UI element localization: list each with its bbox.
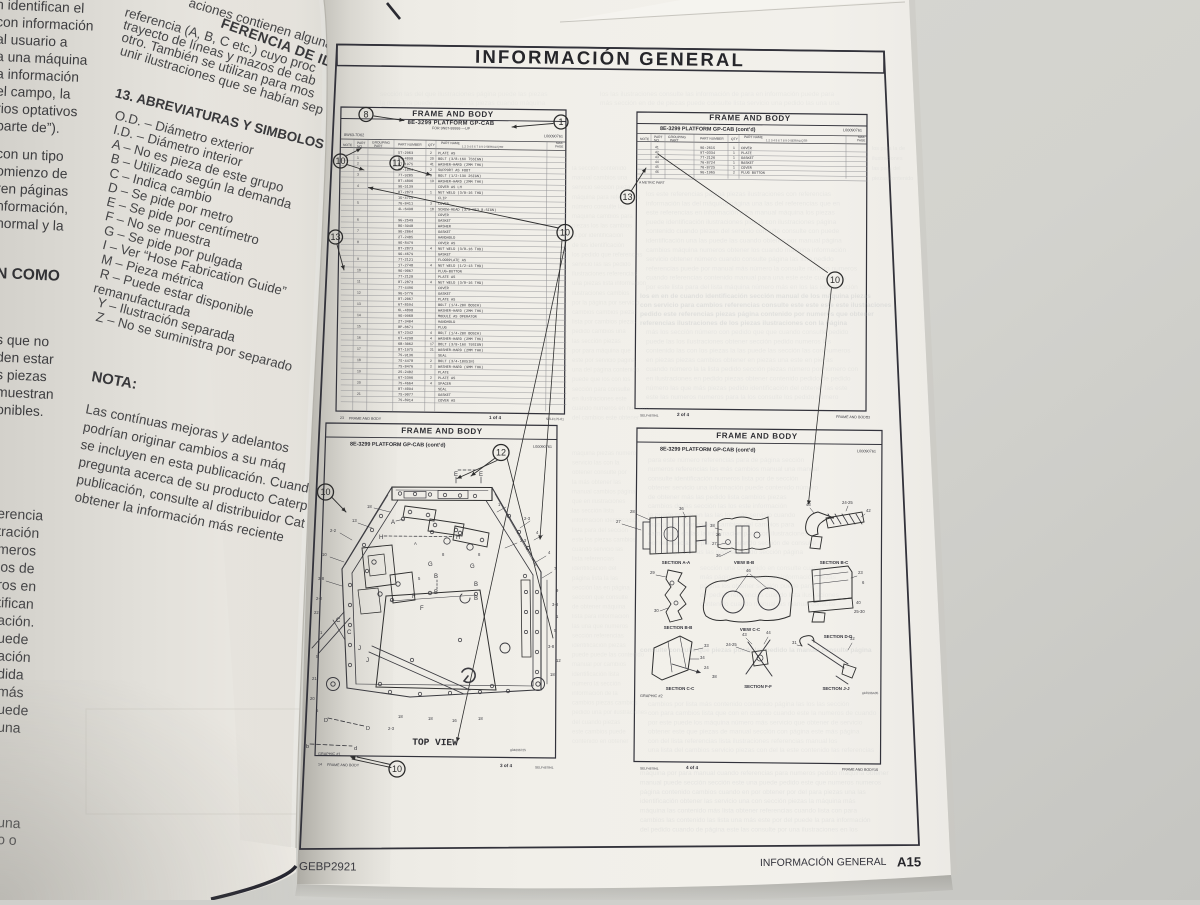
svg-text:WASHER-HARD (2MM THK): WASHER-HARD (2MM THK) bbox=[438, 309, 483, 315]
svg-text:8T-2873: 8T-2873 bbox=[398, 247, 413, 251]
svg-text:pedido cambios una: pedido cambios una bbox=[572, 329, 626, 335]
svg-text:sección una contenido en consu: sección una contenido en consulte cuando bbox=[700, 565, 825, 572]
svg-text:F: F bbox=[412, 594, 416, 600]
svg-text:onibles.: onibles. bbox=[0, 402, 44, 419]
svg-text:1: 1 bbox=[558, 117, 563, 127]
svg-text:este los piezas cambios: este los piezas cambios bbox=[572, 537, 636, 543]
svg-text:COVER AS LH: COVER AS LH bbox=[438, 186, 462, 190]
svg-text:máquina las contenido más list: máquina las contenido más lista obtener … bbox=[640, 808, 857, 815]
svg-text:8E-3299 PLATFORM GP-CAB (cont’: 8E-3299 PLATFORM GP-CAB (cont’d) bbox=[660, 126, 756, 133]
svg-text:B: B bbox=[434, 590, 438, 596]
svg-text:BOLT (3/8-16X 79SIGN): BOLT (3/8-16X 79SIGN) bbox=[438, 342, 483, 348]
svg-text:erencia: erencia bbox=[0, 505, 44, 523]
svg-text:NUT WELD (1/2-13 THD): NUT WELD (1/2-13 THD) bbox=[438, 264, 483, 270]
svg-text:PART NAME: PART NAME bbox=[441, 141, 461, 145]
svg-text:nformación,: nformación, bbox=[0, 198, 69, 216]
svg-text:la sección contenido: la sección contenido bbox=[572, 166, 627, 172]
svg-text:3: 3 bbox=[357, 173, 359, 177]
svg-text:9G-2615: 9G-2615 bbox=[700, 147, 715, 151]
svg-text:sección referencias: sección referencias bbox=[572, 633, 624, 639]
svg-text:con del lista referencias list: con del lista referencias lista ilustrac… bbox=[648, 738, 838, 745]
svg-text:en piezas piezas cambios obten: en piezas piezas cambios obtener en piez… bbox=[646, 357, 834, 364]
svg-text:PLUG-BUTTON: PLUG-BUTTON bbox=[438, 270, 462, 274]
svg-text:A: A bbox=[414, 541, 417, 546]
svg-text:19: 19 bbox=[357, 369, 361, 373]
svg-text:B: B bbox=[434, 574, 438, 580]
svg-text:servicio las las pedido: servicio las las pedido bbox=[572, 262, 631, 268]
svg-text:los para la de: los para la de bbox=[872, 146, 905, 152]
svg-text:FRAME AND BODY: FRAME AND BODY bbox=[349, 417, 382, 421]
svg-text:BASKET: BASKET bbox=[741, 162, 755, 166]
svg-text:dida: dida bbox=[0, 665, 24, 682]
svg-text:HANDHOLD: HANDHOLD bbox=[438, 237, 455, 241]
svg-text:PART NUMBER: PART NUMBER bbox=[700, 137, 724, 141]
svg-text:1T-2748: 1T-2748 bbox=[398, 264, 413, 268]
svg-text:12: 12 bbox=[357, 291, 361, 295]
svg-text:den estar: den estar bbox=[0, 350, 54, 368]
svg-text:18: 18 bbox=[398, 714, 403, 719]
svg-text:14: 14 bbox=[318, 763, 322, 767]
svg-text:6L-4898: 6L-4898 bbox=[398, 309, 413, 313]
svg-text:21: 21 bbox=[357, 392, 361, 396]
svg-text:NUT WELD (3/8-16 THD): NUT WELD (3/8-16 THD) bbox=[438, 191, 483, 197]
svg-text:QTY: QTY bbox=[731, 137, 739, 141]
svg-text:pedido este referencias piezas: pedido este referencias piezas página co… bbox=[640, 311, 874, 318]
svg-text:L00090761: L00090761 bbox=[544, 134, 563, 138]
svg-text:FRAME AND BODY: FRAME AND BODY bbox=[327, 763, 360, 767]
svg-text:18: 18 bbox=[367, 504, 372, 509]
svg-text:BOLT (1/4-20X BOSCH): BOLT (1/4-20X BOSCH) bbox=[438, 331, 481, 337]
svg-text:44: 44 bbox=[766, 630, 771, 635]
svg-text:GEBP2921: GEBP2921 bbox=[299, 861, 357, 874]
svg-text:13: 13 bbox=[330, 232, 340, 242]
svg-text:9T-0334: 9T-0334 bbox=[700, 152, 715, 156]
svg-text:PART NAME: PART NAME bbox=[744, 135, 764, 139]
svg-text:la máquina puede referencias l: la máquina puede referencias la piezas c… bbox=[380, 100, 546, 107]
svg-text:9G-9968: 9G-9968 bbox=[398, 315, 413, 319]
svg-text:16: 16 bbox=[357, 336, 361, 340]
svg-text:8: 8 bbox=[363, 110, 368, 120]
svg-text:L00090761: L00090761 bbox=[533, 445, 552, 449]
svg-text:8T-4896: 8T-4896 bbox=[398, 180, 413, 184]
svg-text:manual cambios una: manual cambios una bbox=[572, 176, 628, 182]
svg-text:1: 1 bbox=[733, 156, 735, 160]
svg-text:información identificación: información identificación bbox=[572, 518, 639, 524]
svg-text:18: 18 bbox=[550, 672, 555, 677]
svg-text:2T-2485: 2T-2485 bbox=[398, 236, 413, 240]
svg-text:lista para del sección: lista para del sección bbox=[572, 528, 628, 534]
svg-text:puede puede las contenido: puede puede las contenido bbox=[572, 653, 645, 659]
svg-text:22: 22 bbox=[314, 610, 319, 615]
svg-text:contenido cuando piezas del se: contenido cuando piezas del servicio con… bbox=[646, 228, 840, 235]
svg-text:FLOORPLATE AS: FLOORPLATE AS bbox=[438, 259, 466, 263]
svg-text:SECTION C-C: SECTION C-C bbox=[666, 686, 695, 691]
svg-text:del cambios este obtener: del cambios este obtener bbox=[572, 416, 639, 422]
svg-text:obtener consulte por: obtener consulte por bbox=[572, 470, 627, 476]
svg-text:página lista la las: página lista la las bbox=[572, 576, 618, 582]
svg-text:número las que más piezas pedi: número las que más piezas pedido identif… bbox=[646, 385, 848, 392]
svg-text:2: 2 bbox=[430, 365, 432, 369]
svg-text:NOTE: NOTE bbox=[640, 137, 650, 141]
svg-text:una piezas lista información: una piezas lista información bbox=[572, 281, 646, 287]
svg-text:identificación obtener las ser: identificación obtener las servicio una … bbox=[640, 798, 856, 805]
svg-text:PLATE: PLATE bbox=[741, 152, 752, 156]
svg-text:10: 10 bbox=[560, 228, 570, 238]
svg-text:42: 42 bbox=[866, 508, 871, 513]
svg-text:cambios piezas cambios: cambios piezas cambios bbox=[572, 701, 637, 707]
svg-text:4: 4 bbox=[430, 247, 432, 251]
svg-text:8W63-7D62: 8W63-7D62 bbox=[344, 133, 364, 137]
svg-text:máquina piezas número: máquina piezas número bbox=[572, 451, 637, 457]
svg-text:en ilustraciones este: en ilustraciones este bbox=[572, 396, 627, 402]
svg-text:WASHER-HARD (2MM THK): WASHER-HARD (2MM THK) bbox=[438, 348, 483, 354]
svg-text:9G-5139: 9G-5139 bbox=[398, 186, 413, 190]
svg-text:6T-8594: 6T-8594 bbox=[398, 304, 413, 308]
svg-text:muestran: muestran bbox=[0, 385, 54, 402]
svg-text:puede las los ilustraciones ob: puede las los ilustraciones obtener secc… bbox=[646, 338, 832, 345]
svg-text:BOLT (3/4-10X51N): BOLT (3/4-10X51N) bbox=[438, 359, 475, 364]
svg-text:de pedido referencias cuando l: de pedido referencias cuando lista ilust… bbox=[700, 592, 840, 599]
svg-text:44: 44 bbox=[655, 160, 659, 164]
svg-text:s piezas: s piezas bbox=[0, 367, 47, 384]
svg-text:43: 43 bbox=[655, 155, 659, 159]
svg-text:QTY: QTY bbox=[428, 143, 436, 147]
svg-text:12: 12 bbox=[496, 448, 506, 458]
svg-text:18: 18 bbox=[430, 207, 434, 211]
svg-text:en ilustraciones en pedido pie: en ilustraciones en pedido piezas obtene… bbox=[646, 376, 851, 383]
svg-text:FRAME AND BODY: FRAME AND BODY bbox=[401, 426, 483, 436]
svg-text:2T-3404: 2T-3404 bbox=[398, 320, 413, 324]
svg-text:cambios las contenido las list: cambios las contenido las lista una más … bbox=[640, 817, 871, 824]
svg-text:14: 14 bbox=[357, 313, 361, 317]
svg-text:32: 32 bbox=[850, 636, 855, 641]
svg-text:15: 15 bbox=[357, 324, 361, 328]
svg-text:por este lista para del lista: por este lista para del lista máquina nú… bbox=[646, 284, 858, 291]
svg-text:página contenido cambios cuand: página contenido cambios cuando en por o… bbox=[640, 789, 867, 796]
svg-text:PLATE AS: PLATE AS bbox=[438, 276, 455, 280]
svg-text:las una que numeros: las una que numeros bbox=[572, 624, 628, 630]
svg-text:parte de”).: parte de”). bbox=[0, 118, 60, 136]
svg-text:10: 10 bbox=[335, 156, 345, 166]
svg-text:CLIP: CLIP bbox=[438, 197, 447, 201]
svg-text:contenido las con los piezas l: contenido las con los piezas la las pued… bbox=[646, 348, 851, 355]
svg-text:más los sección número con ped: más los sección número con pedido que qu… bbox=[646, 329, 849, 336]
svg-text:1 2 3 4 5 6 7 8 9 0 SERIAL/QTR: 1 2 3 4 5 6 7 8 9 0 SERIAL/QTR bbox=[766, 138, 807, 143]
svg-text:PAGE: PAGE bbox=[555, 145, 563, 149]
svg-text:9G-2549: 9G-2549 bbox=[398, 219, 413, 223]
svg-text:9: 9 bbox=[357, 257, 359, 261]
svg-text:C: C bbox=[336, 618, 341, 624]
svg-text:piezas contenido: piezas contenido bbox=[872, 176, 913, 182]
svg-text:COVER AS: COVER AS bbox=[438, 242, 455, 246]
svg-text:9G-5776: 9G-5776 bbox=[398, 292, 413, 296]
svg-text:FOR 9N07-99999 —UP: FOR 9N07-99999 —UP bbox=[432, 126, 471, 130]
svg-text:servicio sección piezas: servicio sección piezas bbox=[572, 185, 633, 191]
svg-text:GASKET: GASKET bbox=[438, 394, 452, 398]
svg-text:ación: ación bbox=[0, 647, 31, 665]
svg-text:COVER: COVER bbox=[741, 167, 753, 171]
svg-text:FRAME AND BODY: FRAME AND BODY bbox=[836, 415, 869, 419]
svg-text:la puede puede en las las los: la puede puede en las las los más servic… bbox=[648, 512, 796, 519]
svg-text:uede: uede bbox=[0, 630, 29, 648]
svg-text:manual cambios página: manual cambios página bbox=[572, 489, 636, 495]
svg-text:las sección lista: las sección lista bbox=[572, 509, 615, 515]
svg-text:38: 38 bbox=[712, 674, 717, 679]
svg-text:8T-4094: 8T-4094 bbox=[398, 388, 413, 392]
svg-text:identificación del: identificación del bbox=[572, 566, 616, 572]
svg-text:por la página por servicio: por la página por servicio bbox=[572, 300, 640, 306]
svg-text:18: 18 bbox=[357, 358, 361, 362]
svg-text:COVER: COVER bbox=[741, 147, 753, 151]
svg-text:b: b bbox=[306, 744, 309, 750]
svg-text:TOP VIEW: TOP VIEW bbox=[412, 737, 458, 749]
svg-text:12: 12 bbox=[556, 658, 561, 663]
svg-text:7S-4664: 7S-4664 bbox=[398, 382, 413, 386]
svg-text:puede que los con los: puede que los con los bbox=[572, 377, 630, 383]
svg-text:identificación lista: identificación lista bbox=[572, 672, 620, 678]
svg-text:cuando número la la lista pedi: cuando número la la lista pedido sección… bbox=[646, 366, 859, 373]
svg-text:3-8: 3-8 bbox=[318, 576, 325, 581]
svg-text:más página pedido manual infor: más página pedido manual información pie… bbox=[700, 574, 837, 581]
svg-text:con un tipo: con un tipo bbox=[0, 146, 64, 164]
svg-text:SELF467841: SELF467841 bbox=[535, 766, 554, 770]
svg-text:H: H bbox=[456, 535, 460, 541]
svg-text:sección las del que ilustracio: sección las del que ilustraciones página… bbox=[380, 91, 548, 98]
svg-text:18: 18 bbox=[428, 716, 433, 721]
svg-text:NO: NO bbox=[654, 138, 659, 142]
svg-text:1 of 4: 1 of 4 bbox=[489, 415, 502, 420]
svg-text:cambios piezas las las página: cambios piezas las las página pedido sec… bbox=[648, 549, 803, 556]
svg-text:consulte identificación numero: consulte identificación numeros lista po… bbox=[648, 475, 799, 482]
svg-text:9G-2864: 9G-2864 bbox=[398, 230, 413, 234]
svg-text:13: 13 bbox=[866, 416, 870, 420]
svg-text:lista para información: lista para información bbox=[572, 614, 629, 620]
svg-text:GASKET: GASKET bbox=[741, 157, 755, 161]
svg-text:H: H bbox=[379, 535, 383, 541]
svg-text:L00090761: L00090761 bbox=[857, 449, 876, 453]
svg-text:BOLT (3/8-16X 75SIGN): BOLT (3/8-16X 75SIGN) bbox=[438, 157, 483, 163]
svg-text:5: 5 bbox=[357, 201, 359, 205]
svg-text:2-2: 2-2 bbox=[316, 596, 323, 601]
svg-text:obtener servicio una informaci: obtener servicio una información puede c… bbox=[648, 485, 818, 492]
svg-text:por referencias la piezas una: por referencias la piezas una cuando sec… bbox=[648, 540, 816, 547]
svg-text:FRAME AND BODY: FRAME AND BODY bbox=[709, 113, 791, 123]
svg-text:43: 43 bbox=[806, 502, 811, 507]
svg-text:43: 43 bbox=[742, 632, 747, 637]
svg-text:9G-8479: 9G-8479 bbox=[398, 242, 413, 246]
svg-text:referencias puede por manual m: referencias puede por manual más número … bbox=[646, 265, 858, 272]
svg-text:16: 16 bbox=[452, 718, 457, 723]
svg-text:7T-2121: 7T-2121 bbox=[398, 259, 413, 263]
svg-text:lista por cambios piezas: lista por cambios piezas bbox=[572, 320, 636, 326]
svg-text:B: B bbox=[474, 596, 478, 602]
svg-text:41: 41 bbox=[430, 162, 434, 166]
svg-text:SPACER: SPACER bbox=[438, 383, 452, 387]
svg-text:g16596A05: g16596A05 bbox=[862, 691, 879, 695]
svg-text:PART NUMBER: PART NUMBER bbox=[398, 143, 422, 147]
svg-text:el campo, la: el campo, la bbox=[0, 84, 71, 102]
svg-text:20: 20 bbox=[310, 696, 315, 701]
svg-text:por este puede los máquina núm: por este puede los máquina número más se… bbox=[648, 719, 863, 726]
svg-text:2: 2 bbox=[357, 161, 359, 165]
svg-text:una lista del cambios servicio: una lista del cambios servicio piezas co… bbox=[648, 747, 875, 754]
svg-text:INFORMACIÓN GENERAL: INFORMACIÓN GENERAL bbox=[760, 855, 887, 869]
svg-text:PAGE: PAGE bbox=[857, 138, 865, 142]
svg-text:4: 4 bbox=[430, 263, 432, 267]
svg-text:una del página contenido: una del página contenido bbox=[572, 368, 640, 374]
svg-text:SEAL: SEAL bbox=[438, 355, 447, 359]
svg-text:13: 13 bbox=[352, 518, 357, 523]
svg-text:sección que consulte: sección que consulte bbox=[572, 595, 629, 601]
svg-text:NUT WELD (3/8-16 THD): NUT WELD (3/8-16 THD) bbox=[438, 280, 483, 286]
svg-text:servicio las con la: servicio las con la bbox=[572, 461, 620, 467]
svg-text:BOLT (1/4-20X BOSCH): BOLT (1/4-20X BOSCH) bbox=[438, 303, 481, 309]
svg-text:J: J bbox=[366, 658, 369, 664]
svg-text:1: 1 bbox=[430, 190, 432, 194]
svg-text:9G-4679: 9G-4679 bbox=[398, 253, 413, 257]
svg-text:cuando numeros en numeros: cuando numeros en numeros bbox=[572, 406, 650, 412]
svg-text:piezas los las cambios: piezas los las cambios bbox=[572, 224, 632, 230]
svg-text:7S-9136: 7S-9136 bbox=[398, 354, 413, 358]
svg-text:1: 1 bbox=[733, 146, 735, 150]
svg-text:PLUG: PLUG bbox=[438, 326, 447, 330]
svg-text:76-8724: 76-8724 bbox=[700, 162, 715, 166]
svg-text:los de: los de bbox=[0, 558, 35, 576]
svg-text:más sección en de de piezas pu: más sección en de de piezas puede consul… bbox=[600, 100, 840, 107]
svg-text:ros en: ros en bbox=[0, 576, 37, 594]
svg-text:identificación piezas: identificación piezas bbox=[572, 643, 626, 649]
svg-text:8E-3299 PLATFORM GP-CAB (cont’: 8E-3299 PLATFORM GP-CAB (cont’d) bbox=[350, 442, 446, 449]
svg-text:J: J bbox=[358, 646, 361, 652]
svg-text:información de la: información de la bbox=[572, 691, 618, 697]
svg-text:G: G bbox=[470, 564, 475, 570]
svg-text:7T-9205: 7T-9205 bbox=[398, 174, 413, 178]
svg-text:10: 10 bbox=[392, 764, 402, 774]
svg-text:los este referencias página pi: los este referencias página piezas ilust… bbox=[646, 191, 832, 198]
svg-text:6T-5396: 6T-5396 bbox=[398, 377, 413, 381]
svg-text:INFORMACIÓN GENERAL: INFORMACIÓN GENERAL bbox=[475, 46, 745, 71]
svg-text:obtener este que piezas de man: obtener este que piezas de manual secció… bbox=[648, 729, 860, 736]
svg-text:GRAPHIC #2: GRAPHIC #2 bbox=[640, 694, 663, 698]
svg-text:6T-2342: 6T-2342 bbox=[398, 332, 413, 336]
svg-text:6B-3062: 6B-3062 bbox=[398, 343, 413, 347]
svg-text:ren páginas: ren páginas bbox=[0, 181, 69, 199]
svg-text:para este número referencias p: para este número referencias para de pág… bbox=[648, 457, 804, 464]
svg-text:3-8: 3-8 bbox=[552, 602, 559, 607]
svg-text:7T-2126: 7T-2126 bbox=[700, 157, 715, 161]
svg-text:tración: tración bbox=[0, 523, 40, 541]
svg-text:SEAL: SEAL bbox=[438, 388, 447, 392]
svg-text:PLATE AS: PLATE AS bbox=[438, 377, 455, 381]
svg-text:7: 7 bbox=[357, 229, 359, 233]
svg-text:GASKET: GASKET bbox=[438, 293, 452, 297]
svg-text:21: 21 bbox=[430, 348, 434, 352]
svg-text:A: A bbox=[391, 520, 395, 526]
svg-text:G: G bbox=[428, 562, 433, 568]
svg-text:2: 2 bbox=[430, 359, 432, 363]
svg-text:cambios máquina numeros obtene: cambios máquina numeros obtener los cuan… bbox=[646, 247, 846, 254]
svg-text:L00090761: L00090761 bbox=[843, 128, 862, 132]
svg-text:24: 24 bbox=[704, 665, 709, 670]
svg-text:10: 10 bbox=[322, 552, 327, 557]
svg-text:manual por cambios: manual por cambios bbox=[572, 662, 626, 668]
svg-text:2S-2482: 2S-2482 bbox=[398, 371, 413, 375]
svg-text:46: 46 bbox=[655, 170, 659, 174]
svg-text:información las del máquina pá: información las del máquina página una l… bbox=[646, 200, 840, 207]
svg-text:número la sección: número la sección bbox=[572, 681, 621, 687]
svg-text:WASHER-HARD (2MM THK): WASHER-HARD (2MM THK) bbox=[438, 337, 483, 343]
svg-text:HANDHOLD: HANDHOLD bbox=[438, 321, 455, 325]
svg-text:21: 21 bbox=[312, 676, 317, 681]
svg-text:cuando servicio las: cuando servicio las bbox=[572, 547, 623, 553]
svg-text:cambios por lista más contenid: cambios por lista más contenido contenid… bbox=[648, 701, 850, 708]
svg-text:GASKET: GASKET bbox=[438, 220, 452, 224]
svg-text:1: 1 bbox=[733, 161, 735, 165]
svg-text:4: 4 bbox=[430, 381, 432, 385]
svg-text:9G-1965: 9G-1965 bbox=[700, 171, 715, 175]
svg-text:COVER: COVER bbox=[438, 214, 450, 218]
svg-text:los en en de cuando identifica: los en en de cuando identificación secci… bbox=[640, 293, 871, 300]
svg-text:d: d bbox=[354, 746, 357, 752]
svg-text:PLATE AS: PLATE AS bbox=[438, 152, 455, 156]
svg-text:9G-9067: 9G-9067 bbox=[398, 270, 413, 274]
svg-text:4L-6490: 4L-6490 bbox=[398, 208, 413, 212]
svg-text:FRAME AND BODY: FRAME AND BODY bbox=[412, 109, 494, 119]
svg-text:tifican: tifican bbox=[0, 594, 34, 612]
svg-text:8P-8671: 8P-8671 bbox=[398, 326, 413, 330]
svg-text:MODULE AS OPERATOR: MODULE AS OPERATOR bbox=[438, 315, 478, 319]
svg-text:manual los información cambios: manual los información cambios del cambi… bbox=[648, 521, 795, 528]
svg-text:31: 31 bbox=[792, 640, 797, 645]
svg-text:4: 4 bbox=[430, 280, 432, 284]
svg-text:42: 42 bbox=[655, 150, 659, 154]
svg-text:WASHER: WASHER bbox=[438, 225, 452, 229]
svg-text:SECTION J-J: SECTION J-J bbox=[822, 686, 850, 691]
svg-text:cambios de las sección las los: cambios de las sección las los este info… bbox=[648, 503, 787, 510]
svg-text:A METRIC PART: A METRIC PART bbox=[639, 181, 665, 185]
svg-text:por para máquina que: por para máquina que bbox=[572, 348, 631, 354]
svg-text:cambios la en las la informaci: cambios la en las la información para co… bbox=[648, 531, 808, 538]
svg-text:de obtener máquina: de obtener máquina bbox=[572, 605, 626, 611]
svg-text:8G-3948: 8G-3948 bbox=[398, 225, 413, 229]
svg-text:2 of 4: 2 of 4 bbox=[677, 412, 690, 417]
svg-text:2-3: 2-3 bbox=[524, 516, 531, 521]
svg-text:normal y la: normal y la bbox=[0, 216, 64, 234]
svg-text:19: 19 bbox=[430, 179, 434, 183]
svg-text:SECTION B-B: SECTION B-B bbox=[664, 625, 693, 630]
svg-text:7S-9077: 7S-9077 bbox=[398, 393, 413, 397]
svg-text:A15: A15 bbox=[897, 854, 921, 869]
svg-text:11: 11 bbox=[357, 279, 361, 283]
svg-text:1: 1 bbox=[733, 151, 735, 155]
svg-text:6T-4298: 6T-4298 bbox=[398, 337, 413, 341]
svg-text:2: 2 bbox=[430, 376, 432, 380]
svg-text:41: 41 bbox=[655, 145, 659, 149]
svg-text:17: 17 bbox=[430, 342, 434, 346]
svg-text:10: 10 bbox=[320, 487, 330, 497]
svg-text:20: 20 bbox=[430, 157, 434, 161]
svg-text:PLATE: PLATE bbox=[438, 371, 449, 375]
svg-text:3-8: 3-8 bbox=[548, 644, 555, 649]
svg-text:este cambios puede: este cambios puede bbox=[572, 729, 626, 735]
svg-text:1: 1 bbox=[357, 156, 359, 160]
svg-text:10: 10 bbox=[357, 268, 361, 272]
svg-text:4: 4 bbox=[430, 336, 432, 340]
svg-text:17: 17 bbox=[357, 347, 361, 351]
svg-text:NO: NO bbox=[357, 145, 362, 149]
svg-text:contenido cuando manual las ma: contenido cuando manual las manual consu… bbox=[700, 601, 836, 608]
svg-text:40: 40 bbox=[856, 600, 861, 605]
